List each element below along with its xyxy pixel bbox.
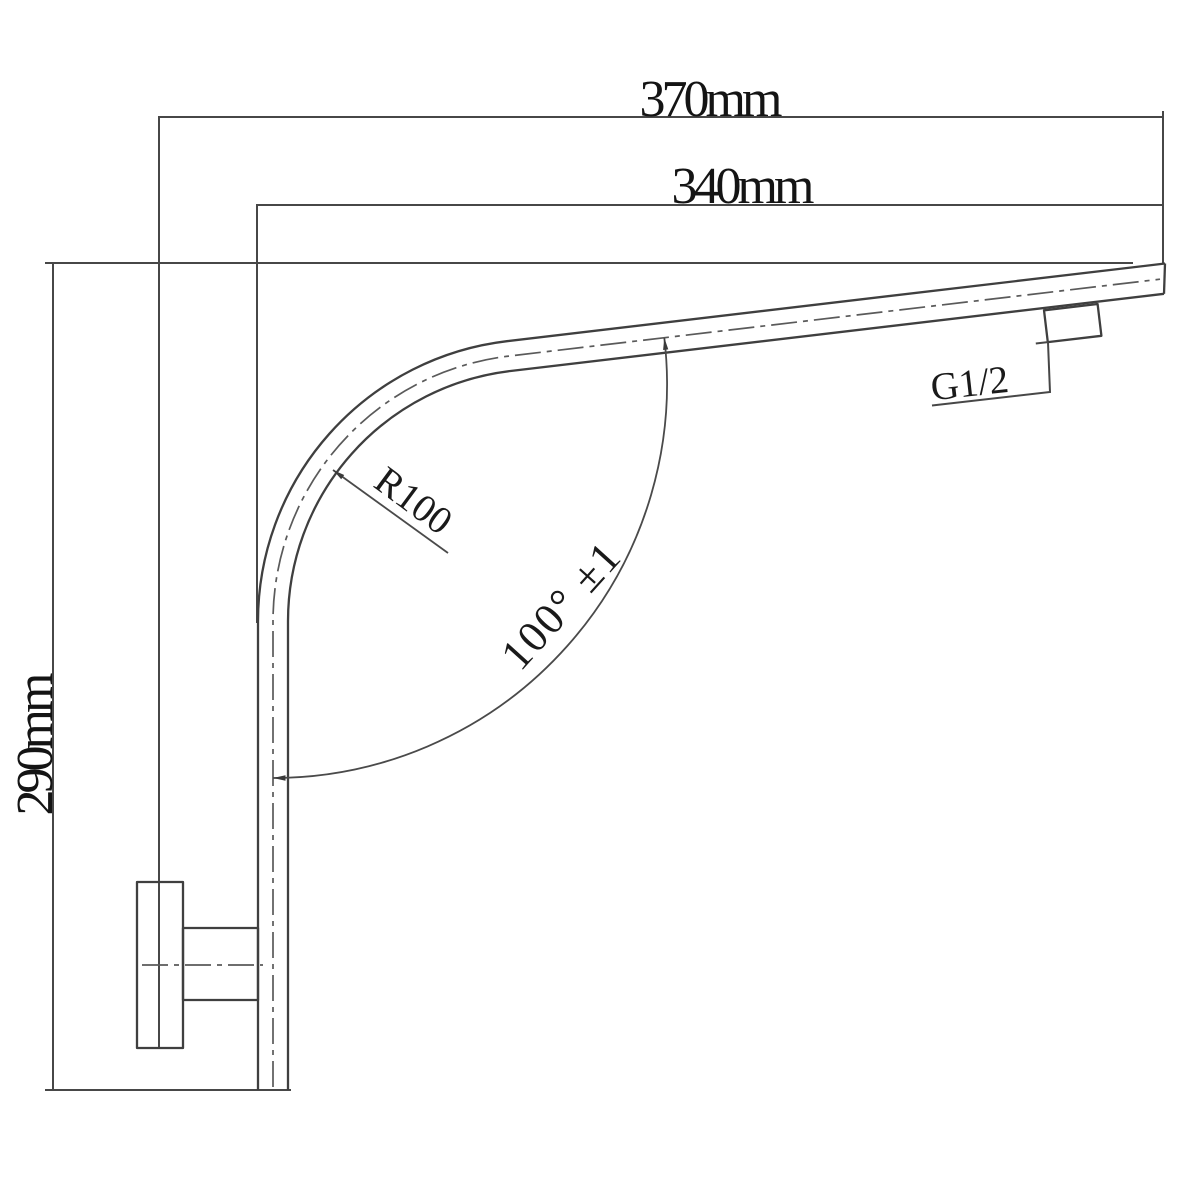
pipe-outer-edge bbox=[258, 264, 1165, 1091]
labels: 370mm 340mm 290mm R100 100° ±1 G1/2 bbox=[7, 71, 1011, 815]
pipe-centerline bbox=[273, 279, 1160, 1087]
pipe-inner-edge bbox=[288, 294, 1164, 1090]
shower-arm-dimension-drawing: 370mm 340mm 290mm R100 100° ±1 G1/2 bbox=[0, 0, 1200, 1200]
dim-370-line bbox=[159, 117, 1163, 1048]
thread-fitting-tick bbox=[1036, 342, 1048, 343]
label-290mm: 290mm bbox=[7, 673, 64, 815]
angle-arc-arrow-bottom bbox=[273, 775, 286, 780]
wall-bracket bbox=[137, 882, 263, 1048]
label-340mm: 340mm bbox=[672, 158, 814, 215]
label-370mm: 370mm bbox=[640, 71, 782, 128]
label-bend-angle: 100° ±1 bbox=[491, 531, 631, 679]
label-thread: G1/2 bbox=[928, 358, 1010, 409]
thread-fitting bbox=[1044, 304, 1101, 342]
dimension-lines bbox=[45, 111, 1163, 1090]
dim-340-line bbox=[257, 205, 1163, 623]
pipe-body bbox=[258, 264, 1165, 1091]
wall-connector bbox=[183, 928, 258, 1000]
technical-drawing-canvas: 370mm 340mm 290mm R100 100° ±1 G1/2 bbox=[0, 0, 1200, 1200]
pipe-end-cap bbox=[1164, 264, 1165, 294]
label-bend-radius: R100 bbox=[367, 459, 461, 544]
